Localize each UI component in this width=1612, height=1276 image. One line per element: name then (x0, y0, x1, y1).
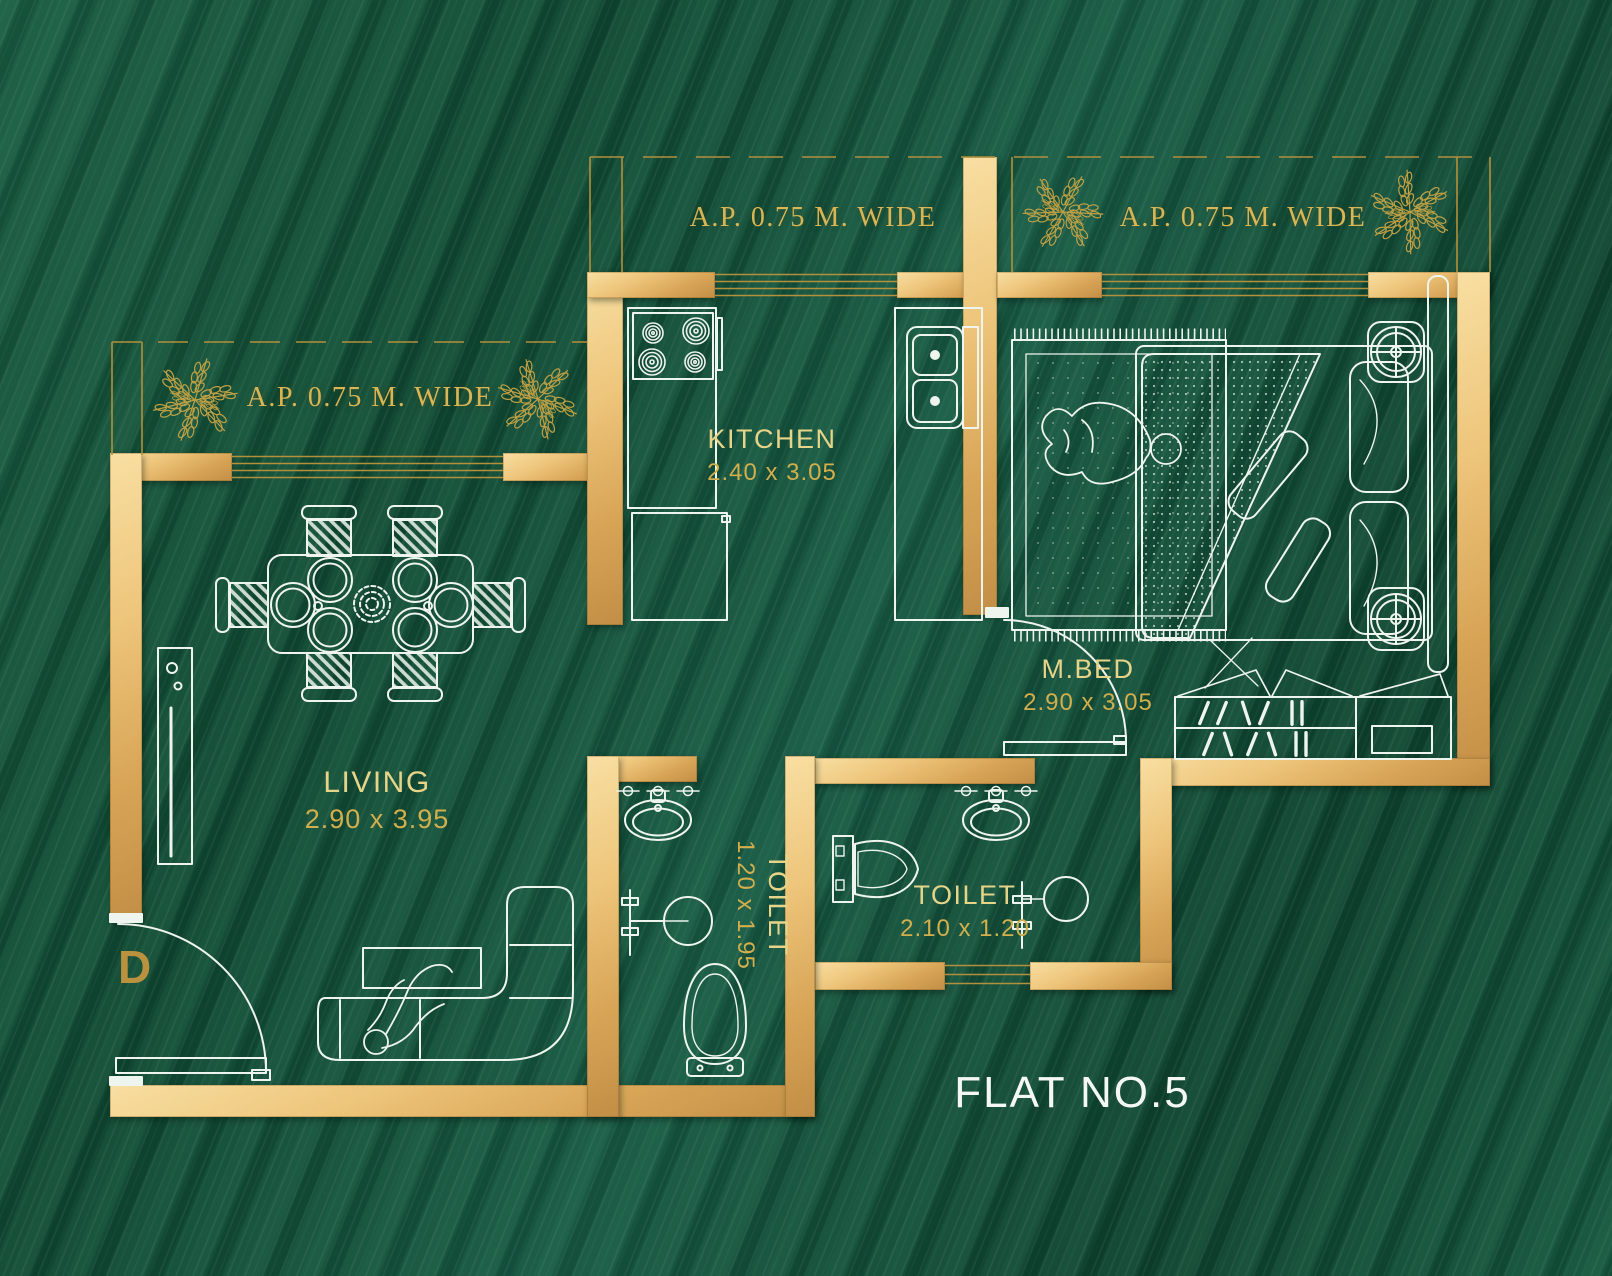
toilet-small-name: TOILET (762, 840, 793, 970)
toilet-small-label: TOILET 1.20 x 1.95 (662, 825, 862, 985)
tv-unit (158, 648, 192, 864)
window-toilet2 (945, 966, 1030, 984)
toilet-small-size: 1.20 x 1.95 (731, 840, 759, 970)
plan-linework (0, 0, 1612, 1276)
kitchen-counter-right (895, 308, 982, 620)
toilet2-sink (955, 787, 1037, 841)
sofa (318, 887, 573, 1060)
flat-number-label: FLAT NO.5 (900, 1068, 1245, 1118)
bed-pillows (1350, 362, 1408, 634)
window-living (232, 457, 503, 478)
balcony-top-outer-label: A.P. 0.75 M. WIDE (1078, 202, 1408, 234)
window-bedroom (1102, 275, 1368, 296)
kitchen-cabinet (632, 513, 730, 620)
coffee-table (363, 948, 481, 988)
table-centerpiece (354, 586, 390, 622)
dining-table (268, 555, 473, 653)
kitchen-counter-left (628, 308, 722, 508)
wardrobe (1175, 670, 1451, 759)
person-figure-living (364, 965, 452, 1054)
floor-plan: A.P. 0.75 M. WIDE A.P. 0.75 M. WIDE A.P.… (0, 0, 1612, 1276)
window-kitchen (715, 275, 897, 296)
stove-burners (639, 318, 709, 375)
balcony-left-label: A.P. 0.75 M. WIDE (205, 382, 535, 414)
toilet2-shower (1013, 877, 1088, 948)
dining-chairs (216, 506, 525, 701)
balcony-top-inner-label: A.P. 0.75 M. WIDE (648, 202, 978, 234)
nightstand-top (1368, 322, 1424, 382)
entrance-door-label: D (118, 940, 151, 994)
